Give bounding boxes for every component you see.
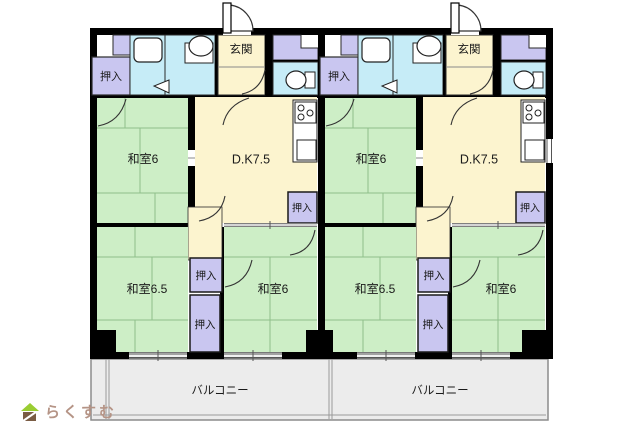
washitsu-top-label: 和室6 xyxy=(356,151,387,166)
wall-bottom xyxy=(318,352,546,359)
entrance-door-icon xyxy=(223,3,253,35)
genkan-label: 玄関 xyxy=(458,42,481,56)
corridor xyxy=(416,207,450,260)
balcony-label: バルコニー xyxy=(191,384,248,397)
wall-genkan-right xyxy=(265,35,273,95)
washbasin-icon xyxy=(189,36,213,56)
entrance-door-icon xyxy=(451,3,481,35)
unit-1: 玄関 押入 和室6 D.K7.5 押入 押入 押入 和室6.5 和室6 xyxy=(90,3,318,361)
corridor xyxy=(188,207,222,260)
pillar xyxy=(522,330,553,359)
wall-right xyxy=(546,28,553,359)
closet-corner xyxy=(273,35,318,60)
closet-entry-label: 押入 xyxy=(100,69,122,83)
toilet-icon xyxy=(286,71,306,89)
wall-top xyxy=(318,28,546,35)
wall-row3 xyxy=(97,223,188,227)
bathtub-icon xyxy=(134,38,162,62)
closet-dk-label: 押入 xyxy=(292,202,312,215)
pillar xyxy=(90,330,116,359)
genkan-label: 玄関 xyxy=(230,42,253,56)
floor-plan: バルコニー バルコニー xyxy=(0,0,640,425)
washitsu-top-label: 和室6 xyxy=(128,151,159,166)
balcony-label: バルコニー xyxy=(411,384,468,397)
toilet-icon xyxy=(514,71,534,89)
dk-label: D.K7.5 xyxy=(232,152,270,166)
washitsu-br-label: 和室6 xyxy=(258,281,289,296)
closet-mid-label: 押入 xyxy=(424,269,445,282)
wall-row3 xyxy=(325,223,416,227)
dk-label: D.K7.5 xyxy=(460,152,498,166)
balcony: バルコニー バルコニー xyxy=(91,359,548,420)
closet-mid-label: 押入 xyxy=(196,269,217,282)
rakusumu-logo: らくすむ xyxy=(21,401,117,422)
bathtub-icon xyxy=(362,38,390,62)
washitsu-bl-label: 和室6.5 xyxy=(355,281,396,296)
wall-genkan-right xyxy=(493,35,501,95)
kitchen-sink-icon xyxy=(297,140,316,160)
wall-bottom xyxy=(90,352,318,359)
closet-bottom-label: 押入 xyxy=(195,318,216,331)
closet-entry-label: 押入 xyxy=(328,69,350,83)
unit-2: 玄関 押入 和室6 D.K7.5 押入 押入 押入 和室6.5 和室6 xyxy=(318,3,546,361)
logo-house-icon xyxy=(21,402,41,422)
closet-corner xyxy=(501,35,546,60)
balcony-area xyxy=(91,359,548,420)
logo-text: らくすむ xyxy=(45,401,117,422)
washitsu-br-label: 和室6 xyxy=(486,281,517,296)
washbasin-icon xyxy=(417,36,441,56)
washitsu-bl-label: 和室6.5 xyxy=(127,281,168,296)
closet-bottom-label: 押入 xyxy=(423,318,444,331)
closet-nook xyxy=(113,35,130,55)
pillar xyxy=(306,330,333,359)
stove-icon xyxy=(523,102,544,123)
stove-icon xyxy=(295,102,316,123)
kitchen-sink-icon xyxy=(525,140,544,160)
floor-plan-page: バルコニー バルコニー xyxy=(0,0,640,425)
wall-top xyxy=(90,28,318,35)
closet-dk-label: 押入 xyxy=(520,202,540,215)
closet-nook xyxy=(341,35,358,55)
